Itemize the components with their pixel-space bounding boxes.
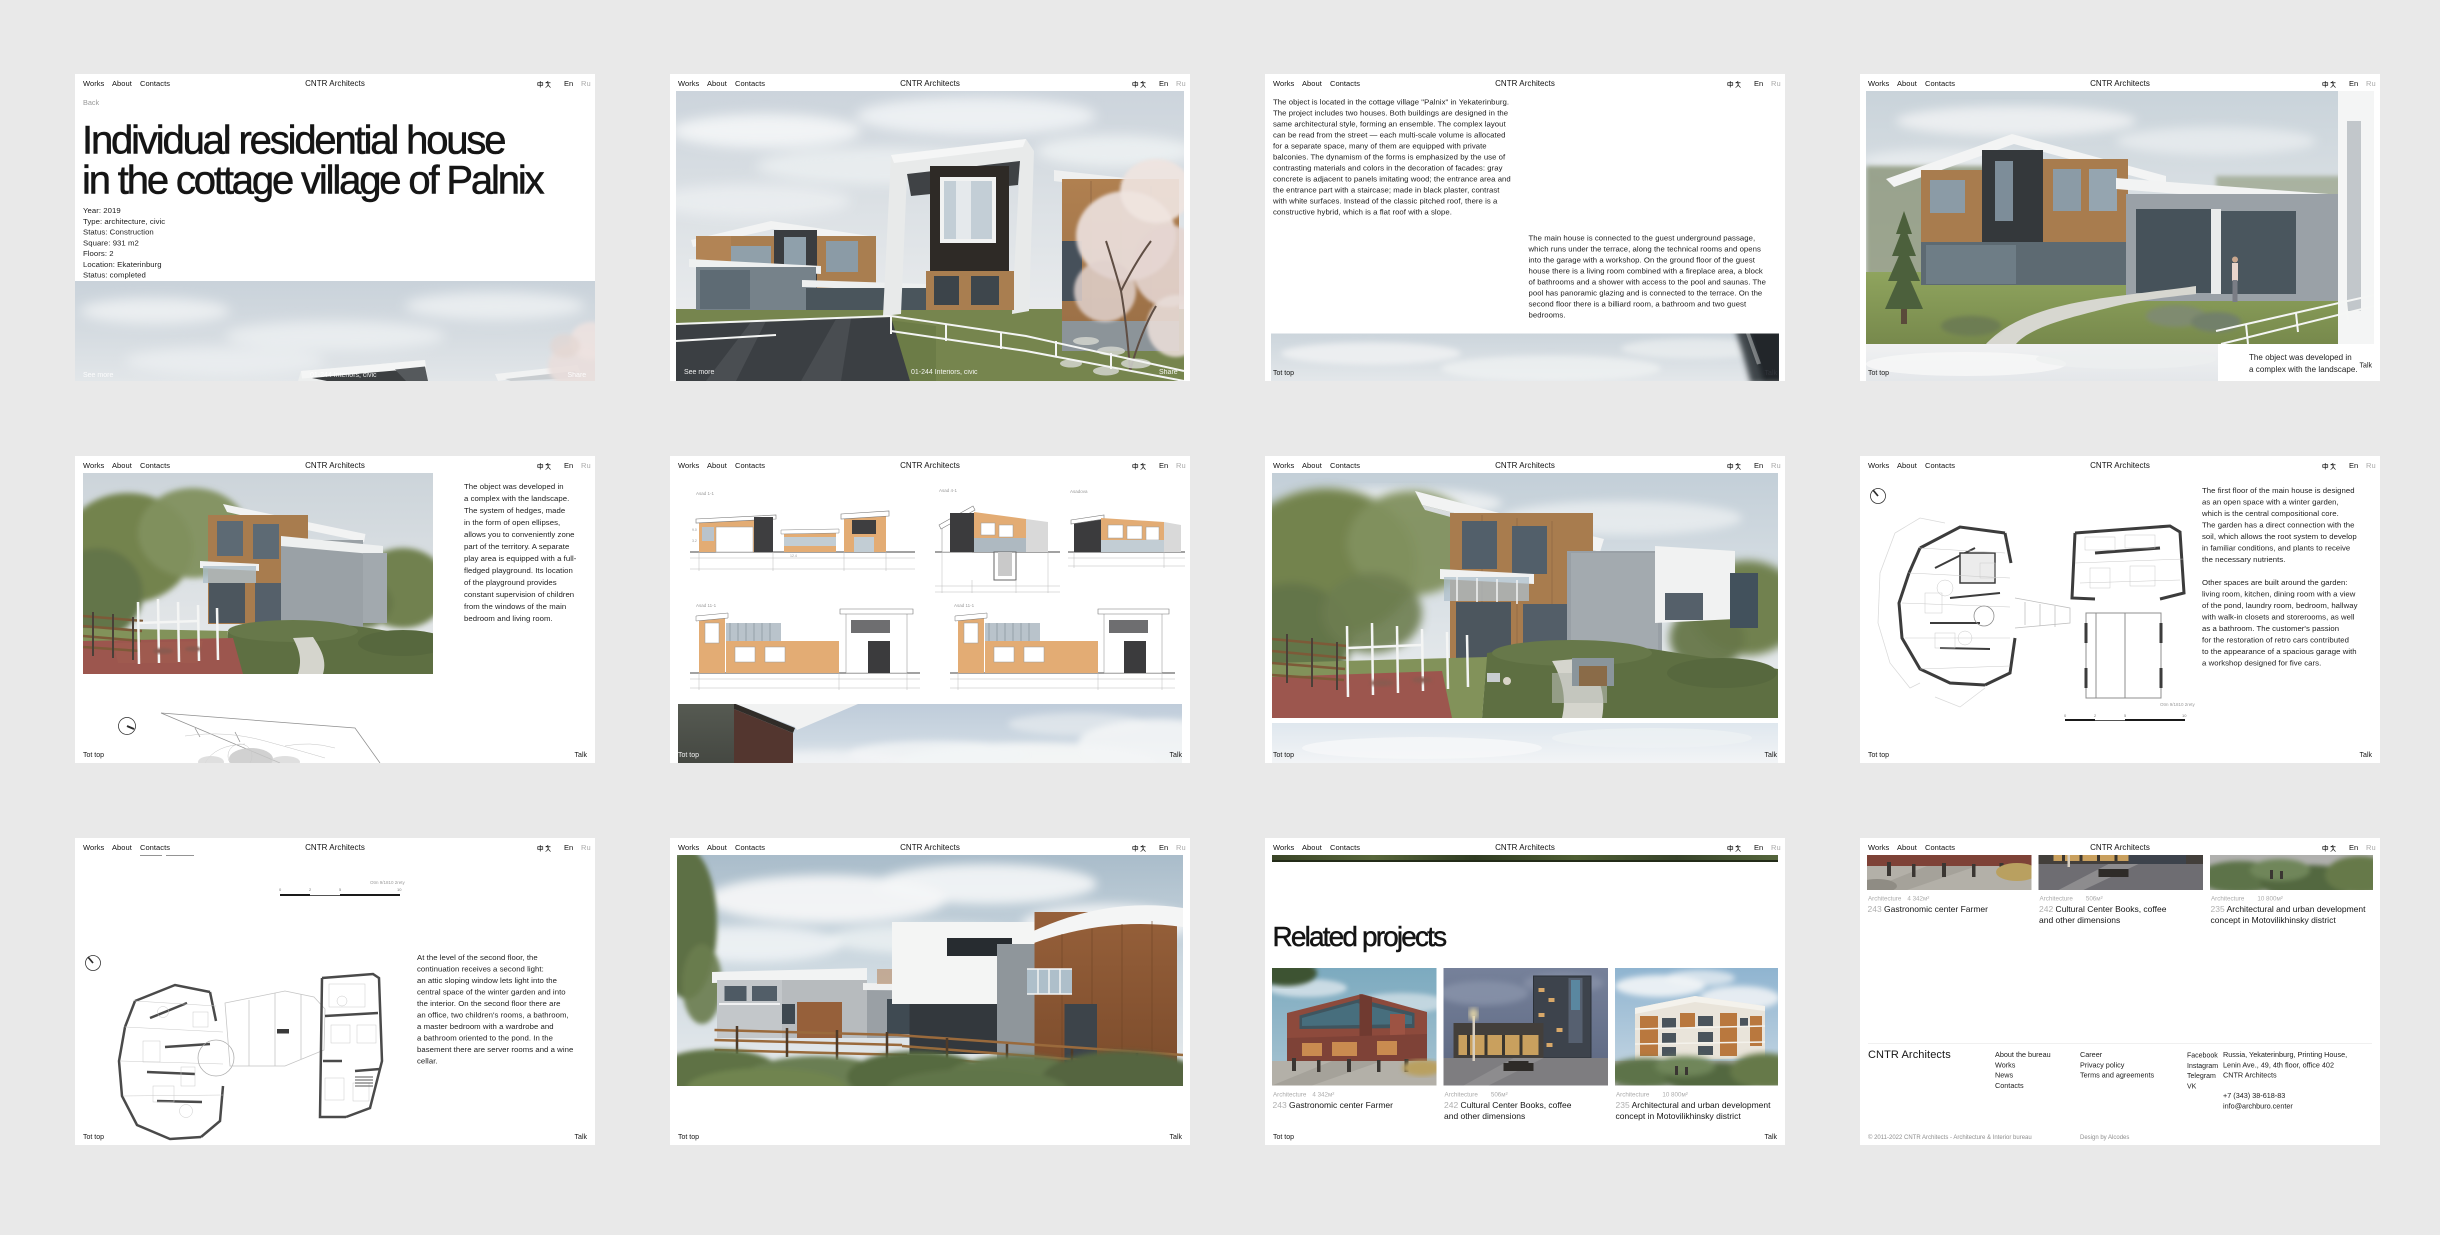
svg-text:Asad 4-1: Asad 4-1 bbox=[939, 488, 958, 493]
svg-text:Asad 1-1: Asad 1-1 bbox=[696, 491, 715, 496]
svg-text:9.0: 9.0 bbox=[692, 528, 697, 532]
svg-text:See more: See more bbox=[83, 372, 113, 379]
svg-text:10: 10 bbox=[2182, 713, 2187, 718]
svg-text:Share: Share bbox=[1159, 369, 1178, 376]
svg-text:3.2: 3.2 bbox=[692, 539, 697, 543]
svg-text:Asadova: Asadova bbox=[1070, 489, 1088, 494]
svg-text:Share: Share bbox=[568, 372, 587, 379]
svg-text:01-244 Interiors, civic: 01-244 Interiors, civic bbox=[310, 372, 377, 379]
svg-text:See more: See more bbox=[684, 369, 714, 376]
svg-text:Asad 11-1: Asad 11-1 bbox=[954, 603, 975, 608]
svg-text:Otm 9/1810 2rety: Otm 9/1810 2rety bbox=[2160, 702, 2196, 707]
svg-text:Otm 9/1810 2rety: Otm 9/1810 2rety bbox=[370, 880, 406, 885]
svg-text:01-244 Interiors, civic: 01-244 Interiors, civic bbox=[911, 369, 978, 376]
svg-text:Asad 11-1: Asad 11-1 bbox=[696, 603, 717, 608]
svg-text:12.4: 12.4 bbox=[790, 554, 797, 558]
svg-text:10: 10 bbox=[397, 887, 402, 892]
